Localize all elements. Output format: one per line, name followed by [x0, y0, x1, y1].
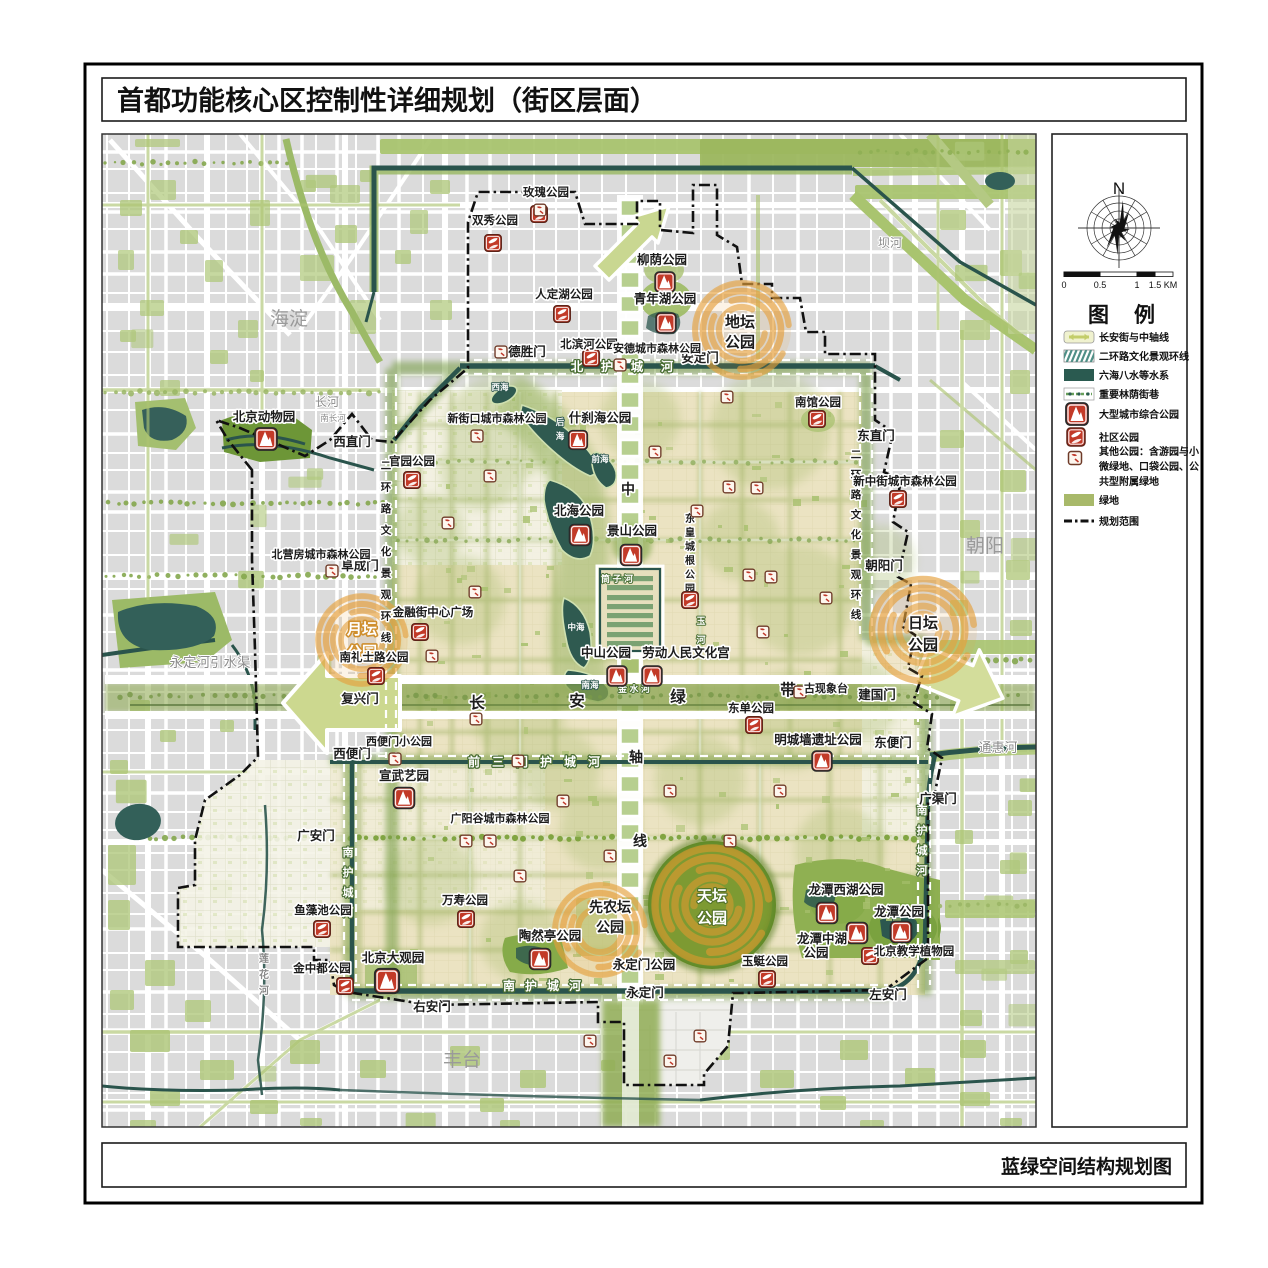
svg-text:线: 线: [381, 631, 392, 644]
svg-text:陶然亭公园: 陶然亭公园: [519, 928, 582, 943]
svg-text:河: 河: [568, 978, 581, 993]
svg-text:路: 路: [851, 488, 862, 501]
svg-text:南: 南: [343, 845, 354, 859]
svg-text:0: 0: [1061, 280, 1066, 290]
svg-text:金中都公园: 金中都公园: [292, 961, 351, 975]
svg-text:西海: 西海: [491, 382, 509, 392]
svg-text:护: 护: [917, 823, 928, 837]
svg-text:莲: 莲: [259, 952, 269, 965]
svg-text:化: 化: [851, 528, 862, 541]
svg-text:丰台: 丰台: [443, 1049, 481, 1071]
svg-text:东单公园: 东单公园: [728, 701, 774, 715]
svg-text:长河: 长河: [315, 395, 339, 409]
svg-text:中山公园: 中山公园: [581, 645, 631, 660]
svg-text:绿地: 绿地: [1099, 494, 1119, 507]
svg-text:人定湖公园: 人定湖公园: [535, 287, 593, 301]
svg-text:新中街城市森林公园: 新中街城市森林公园: [853, 474, 957, 488]
svg-text:北海公园: 北海公园: [554, 503, 604, 518]
svg-text:南长河: 南长河: [320, 413, 346, 423]
svg-text:三: 三: [492, 755, 504, 769]
svg-text:广渠门: 广渠门: [919, 791, 957, 806]
svg-text:中: 中: [621, 481, 635, 497]
svg-text:双秀公园: 双秀公园: [471, 213, 518, 227]
svg-text:北京大观园: 北京大观园: [362, 950, 425, 965]
svg-text:公园: 公园: [725, 334, 755, 351]
svg-text:龙潭公园: 龙潭公园: [873, 904, 924, 919]
svg-text:皇: 皇: [685, 526, 695, 539]
svg-text:朝阳: 朝阳: [966, 535, 1004, 557]
svg-text:共型附属绿地: 共型附属绿地: [1099, 475, 1159, 488]
svg-text:环: 环: [851, 589, 862, 601]
svg-text:公园: 公园: [803, 946, 828, 960]
svg-text:河: 河: [661, 359, 674, 374]
svg-text:安德城市森林公园: 安德城市森林公园: [613, 341, 701, 355]
svg-text:公园: 公园: [908, 637, 938, 654]
svg-text:城: 城: [685, 540, 695, 553]
svg-text:先农坛: 先农坛: [589, 899, 631, 915]
svg-text:南礼士路公园: 南礼士路公园: [340, 650, 409, 664]
svg-text:长安街与中轴线: 长安街与中轴线: [1099, 331, 1169, 344]
svg-text:0.5: 0.5: [1094, 280, 1107, 290]
svg-text:二环路文化景观环线: 二环路文化景观环线: [1099, 350, 1189, 363]
svg-text:金融街中心广场: 金融街中心广场: [392, 605, 474, 619]
svg-text:玉: 玉: [696, 616, 705, 626]
svg-text:景: 景: [850, 548, 862, 561]
svg-text:化: 化: [381, 545, 392, 558]
svg-text:日坛: 日坛: [908, 614, 938, 632]
svg-text:线: 线: [851, 608, 862, 621]
svg-text:左安门: 左安门: [868, 987, 907, 1002]
svg-text:天坛: 天坛: [697, 887, 727, 905]
svg-text:西直门: 西直门: [333, 434, 371, 449]
svg-text:长: 长: [469, 693, 485, 712]
svg-text:广安门: 广安门: [297, 828, 335, 843]
svg-text:新街口城市森林公园: 新街口城市森林公园: [448, 411, 547, 425]
svg-text:景山公园: 景山公园: [607, 523, 657, 538]
svg-text:德胜门: 德胜门: [508, 344, 546, 359]
svg-text:城: 城: [547, 978, 559, 993]
svg-text:规划范围: 规划范围: [1099, 515, 1139, 528]
svg-text:景: 景: [380, 567, 392, 580]
svg-text:柳荫公园: 柳荫公园: [637, 252, 687, 267]
svg-text:建国门: 建国门: [858, 687, 896, 702]
svg-text:路: 路: [381, 502, 392, 515]
svg-text:龙潭西湖公园: 龙潭西湖公园: [807, 882, 883, 897]
svg-text:永定门公园: 永定门公园: [612, 957, 676, 972]
svg-text:官园公园: 官园公园: [389, 454, 435, 468]
svg-text:东便门: 东便门: [874, 735, 912, 750]
svg-text:永定门: 永定门: [625, 985, 664, 1000]
svg-text:文: 文: [850, 508, 862, 521]
svg-text:1.5 KM: 1.5 KM: [1149, 280, 1178, 290]
svg-text:河: 河: [696, 634, 705, 645]
svg-text:二: 二: [851, 449, 862, 461]
svg-text:护: 护: [601, 359, 614, 374]
svg-text:轴: 轴: [629, 749, 643, 765]
svg-text:东直门: 东直门: [857, 428, 895, 443]
svg-text:1: 1: [1134, 280, 1139, 290]
svg-text:其他公园：含游园与小: 其他公园：含游园与小: [1099, 445, 1199, 458]
svg-text:海淀: 海淀: [270, 308, 308, 330]
svg-text:城: 城: [564, 754, 576, 769]
svg-text:社区公园: 社区公园: [1098, 431, 1139, 444]
svg-text:河: 河: [587, 754, 600, 769]
svg-text:明城墙遗址公园: 明城墙遗址公园: [774, 732, 862, 747]
svg-text:环: 环: [381, 611, 392, 623]
svg-text:南: 南: [503, 978, 515, 993]
svg-text:公: 公: [685, 569, 695, 581]
svg-text:例: 例: [1134, 303, 1155, 327]
svg-text:古现象台: 古现象台: [804, 681, 848, 695]
svg-text:前海: 前海: [591, 454, 609, 464]
svg-text:根: 根: [685, 554, 695, 567]
svg-text:永定河引水渠: 永定河引水渠: [170, 655, 251, 670]
svg-text:鱼藻池公园: 鱼藻池公园: [294, 903, 352, 917]
svg-text:城: 城: [343, 885, 354, 899]
svg-text:北: 北: [571, 359, 584, 374]
svg-text:花: 花: [259, 968, 269, 981]
svg-text:城: 城: [631, 359, 644, 374]
svg-text:龙潭中湖: 龙潭中湖: [796, 931, 847, 946]
svg-text:首都功能核心区控制性详细规划（街区层面）: 首都功能核心区控制性详细规划（街区层面）: [117, 85, 657, 116]
svg-text:地坛: 地坛: [725, 313, 755, 331]
svg-text:线: 线: [633, 833, 647, 849]
svg-text:护: 护: [540, 754, 552, 769]
svg-text:什刹海公园: 什刹海公园: [569, 410, 632, 425]
svg-text:北京动物园: 北京动物园: [233, 409, 296, 424]
svg-text:南馆公园: 南馆公园: [795, 395, 841, 409]
svg-text:河: 河: [917, 863, 928, 877]
svg-text:河: 河: [259, 985, 269, 997]
svg-text:中海: 中海: [567, 622, 585, 632]
svg-text:蓝绿空间结构规划图: 蓝绿空间结构规划图: [1001, 1155, 1172, 1178]
svg-text:六海八水等水系: 六海八水等水系: [1099, 369, 1169, 382]
svg-text:后: 后: [556, 417, 565, 427]
svg-text:公园: 公园: [697, 910, 727, 927]
svg-text:前: 前: [468, 754, 480, 769]
svg-text:城: 城: [917, 843, 928, 857]
svg-text:图: 图: [1088, 304, 1109, 327]
svg-text:南海: 南海: [581, 680, 599, 690]
svg-text:绿: 绿: [670, 687, 686, 706]
svg-text:北滨河公园: 北滨河公园: [560, 337, 618, 351]
svg-text:右安门: 右安门: [412, 999, 451, 1014]
svg-text:劳动人民文化宫: 劳动人民文化宫: [642, 645, 730, 660]
svg-text:文: 文: [380, 524, 392, 537]
svg-text:重要林荫街巷: 重要林荫街巷: [1099, 388, 1160, 401]
svg-text:公园: 公园: [596, 919, 624, 935]
svg-text:护: 护: [525, 978, 537, 993]
svg-text:复兴门: 复兴门: [340, 691, 379, 706]
svg-text:西便门小公园: 西便门小公园: [366, 734, 432, 748]
svg-text:西便门: 西便门: [333, 746, 371, 761]
svg-text:宣武艺园: 宣武艺园: [379, 768, 429, 783]
svg-text:海: 海: [556, 431, 565, 441]
svg-text:青年湖公园: 青年湖公园: [634, 291, 697, 306]
svg-text:玉蜓公园: 玉蜓公园: [742, 954, 788, 968]
svg-text:微绿地、口袋公园、公: 微绿地、口袋公园、公: [1098, 460, 1199, 473]
svg-text:月坛: 月坛: [346, 620, 377, 638]
svg-text:环: 环: [381, 482, 392, 494]
svg-text:坝河: 坝河: [878, 236, 902, 250]
svg-text:大型城市综合公园: 大型城市综合公园: [1099, 408, 1179, 421]
svg-text:北京教学植物园: 北京教学植物园: [874, 944, 955, 958]
svg-text:安: 安: [569, 691, 585, 710]
svg-text:通惠河: 通惠河: [978, 740, 1017, 755]
svg-text:护: 护: [343, 865, 354, 879]
svg-text:广阳谷城市森林公园: 广阳谷城市森林公园: [451, 811, 550, 825]
svg-text:观: 观: [381, 589, 392, 601]
svg-text:筒 子 河: 筒 子 河: [601, 573, 633, 584]
svg-text:玫瑰公园: 玫瑰公园: [523, 185, 569, 199]
svg-text:观: 观: [851, 569, 862, 581]
svg-text:北营房城市森林公园: 北营房城市森林公园: [272, 547, 371, 561]
svg-text:朝阳门: 朝阳门: [865, 558, 903, 573]
svg-text:万寿公园: 万寿公园: [441, 893, 488, 907]
